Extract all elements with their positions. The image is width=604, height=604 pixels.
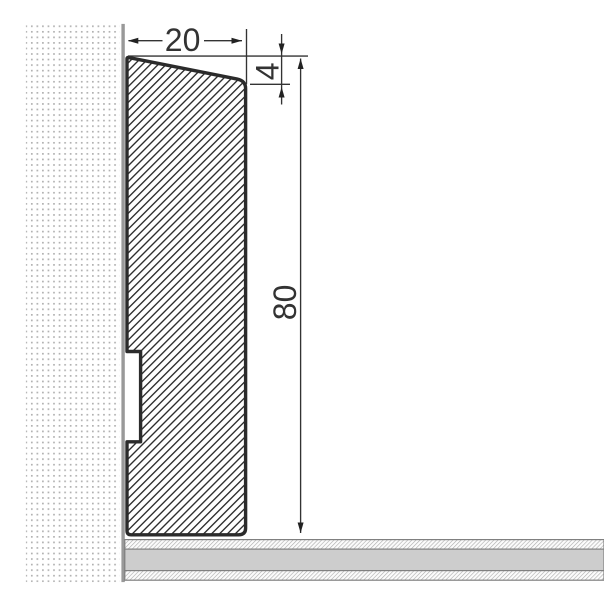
svg-text:4: 4 bbox=[250, 63, 286, 81]
svg-text:20: 20 bbox=[165, 22, 201, 58]
svg-text:80: 80 bbox=[267, 285, 303, 321]
